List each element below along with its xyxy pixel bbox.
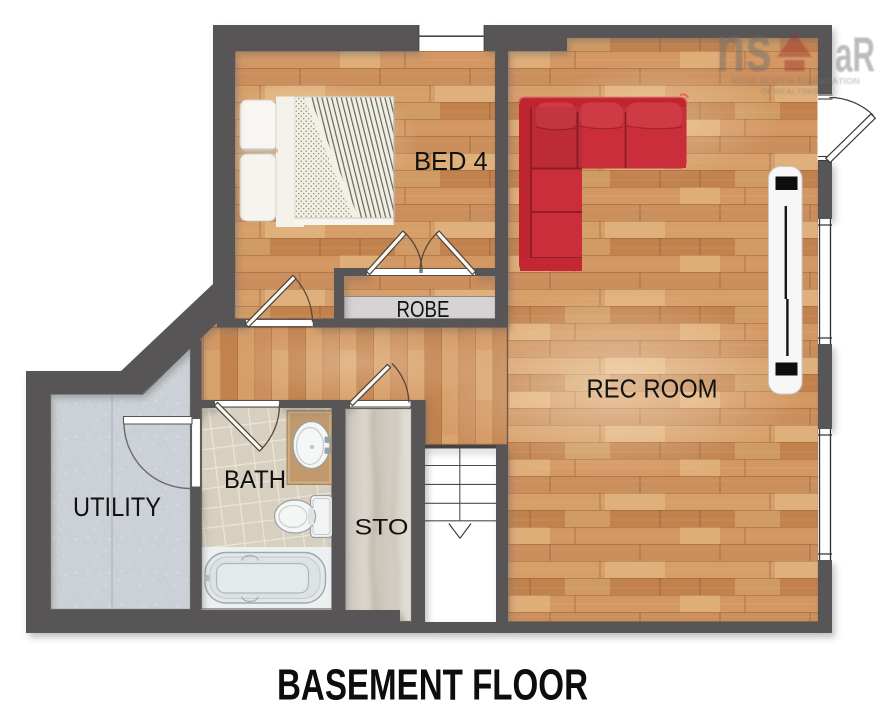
svg-text:aR: aR <box>835 29 875 83</box>
svg-text:OF REALTORS: OF REALTORS <box>761 88 820 97</box>
svg-text:UTILITY: UTILITY <box>73 492 161 522</box>
svg-text:BED 4: BED 4 <box>414 148 488 176</box>
svg-text:REC ROOM: REC ROOM <box>587 376 718 404</box>
svg-text:BATH: BATH <box>224 466 286 494</box>
svg-text:NOVA SCOTIA ASSOCIATION: NOVA SCOTIA ASSOCIATION <box>731 77 860 86</box>
svg-text:BASEMENT FLOOR: BASEMENT FLOOR <box>277 661 588 710</box>
svg-text:STO: STO <box>355 515 409 540</box>
svg-text:ROBE: ROBE <box>397 296 450 322</box>
svg-text:ns: ns <box>716 11 772 85</box>
